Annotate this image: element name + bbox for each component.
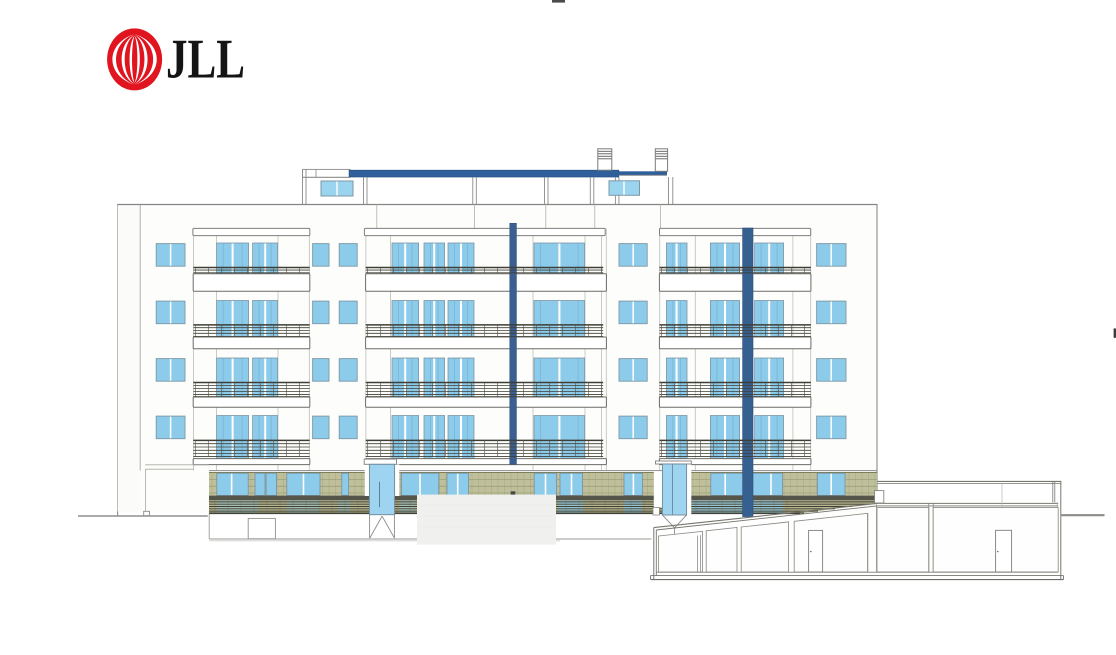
- svg-text:JLL: JLL: [166, 29, 245, 91]
